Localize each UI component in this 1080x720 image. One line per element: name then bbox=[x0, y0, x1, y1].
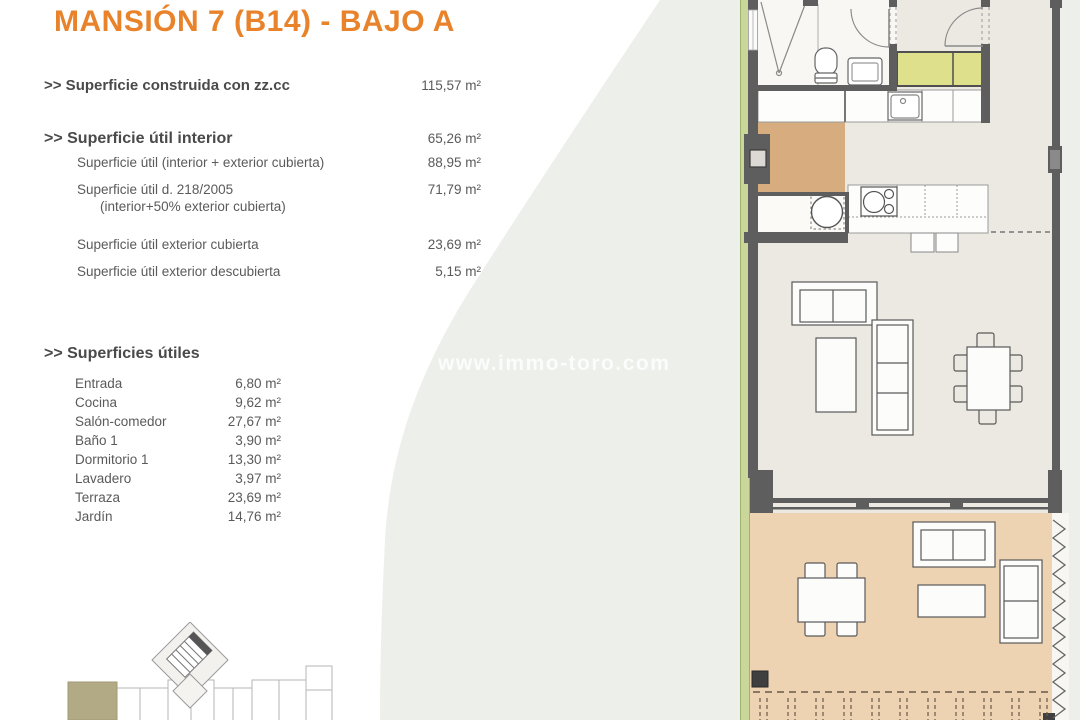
value-superficie-construida: 115,57 m² bbox=[389, 78, 481, 93]
label-util-decreto: Superficie útil d. 218/2005 bbox=[77, 182, 233, 197]
sublabel-util-decreto: (interior+50% exterior cubierta) bbox=[100, 199, 286, 214]
bathroom-sink bbox=[848, 58, 882, 85]
room-value: 9,62 m² bbox=[189, 395, 281, 410]
bar-stools bbox=[911, 233, 958, 252]
label-exterior-descubierta: Superficie útil exterior descubierta bbox=[77, 264, 280, 279]
value-util-total: 88,95 m² bbox=[389, 155, 481, 170]
room-label: Entrada bbox=[75, 376, 122, 391]
room-label: Lavadero bbox=[75, 471, 131, 486]
room-value: 13,30 m² bbox=[189, 452, 281, 467]
entrance-door-detail bbox=[750, 150, 766, 167]
bedroom-window bbox=[1050, 150, 1060, 169]
kitchen-sink bbox=[888, 92, 922, 120]
room-label: Terraza bbox=[75, 490, 120, 505]
room-value: 27,67 m² bbox=[189, 414, 281, 429]
room-value: 3,90 m² bbox=[189, 433, 281, 448]
value-exterior-cubierta: 23,69 m² bbox=[389, 237, 481, 252]
terrace-pillar-right bbox=[1043, 713, 1055, 720]
wardrobe bbox=[897, 52, 983, 86]
label-exterior-cubierta: Superficie útil exterior cubierta bbox=[77, 237, 259, 252]
room-value: 23,69 m² bbox=[189, 490, 281, 505]
label-superficie-construida: >> Superficie construida con zz.cc bbox=[44, 77, 290, 94]
floor-plan bbox=[735, 0, 1080, 720]
terrace-coffee-table bbox=[918, 585, 985, 617]
value-util-interior: 65,26 m² bbox=[389, 131, 481, 146]
brochure-page: www.immo-toro.com MANSIÓN 7 (B14) - BAJO… bbox=[0, 0, 1080, 720]
page-title: MANSIÓN 7 (B14) - BAJO A bbox=[54, 5, 455, 39]
room-label: Cocina bbox=[75, 395, 117, 410]
label-util-interior: >> Superficie útil interior bbox=[44, 130, 233, 148]
rooms-heading: >> Superficies útiles bbox=[44, 345, 200, 363]
coffee-table bbox=[816, 338, 856, 412]
value-exterior-descubierta: 5,15 m² bbox=[389, 264, 481, 279]
room-label: Salón-comedor bbox=[75, 414, 167, 429]
room-label: Jardín bbox=[75, 509, 113, 524]
terrace-pillar bbox=[752, 671, 768, 687]
kitchen-counter-top bbox=[758, 90, 985, 122]
entrance-floor bbox=[758, 118, 845, 192]
stove bbox=[861, 187, 897, 216]
terrace-lounge-chair bbox=[1000, 560, 1042, 643]
label-util-total: Superficie útil (interior + exterior cub… bbox=[77, 155, 324, 170]
toilet bbox=[815, 48, 837, 83]
room-label: Dormitorio 1 bbox=[75, 452, 149, 467]
room-value: 3,97 m² bbox=[189, 471, 281, 486]
room-label: Baño 1 bbox=[75, 433, 118, 448]
terrace-sofa bbox=[913, 522, 995, 567]
room-value: 14,76 m² bbox=[189, 509, 281, 524]
room-value: 6,80 m² bbox=[189, 376, 281, 391]
spec-panel: MANSIÓN 7 (B14) - BAJO A >> Superficie c… bbox=[0, 0, 740, 720]
dining-table bbox=[967, 347, 1010, 410]
value-util-decreto: 71,79 m² bbox=[389, 182, 481, 197]
